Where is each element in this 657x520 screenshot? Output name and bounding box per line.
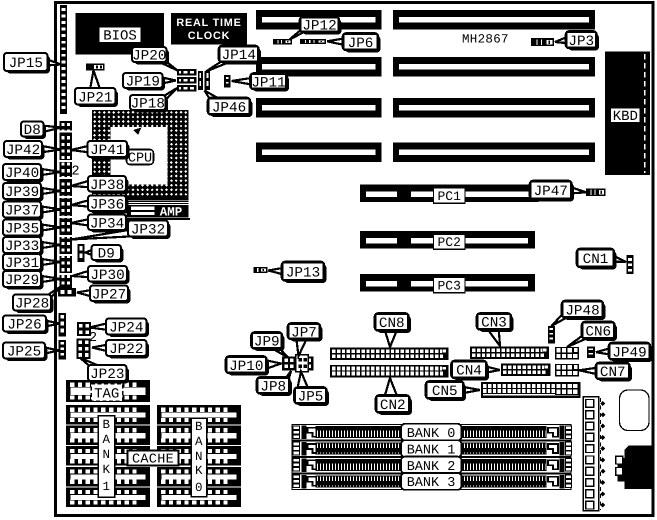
svg-text:JP21: JP21 bbox=[78, 90, 112, 106]
svg-text:JP48: JP48 bbox=[565, 303, 599, 319]
svg-text:JP12: JP12 bbox=[302, 19, 336, 35]
svg-text:CN8: CN8 bbox=[379, 316, 405, 332]
svg-text:CN5: CN5 bbox=[432, 384, 458, 400]
svg-text:JP18: JP18 bbox=[131, 97, 165, 113]
svg-text:JP39: JP39 bbox=[5, 185, 39, 201]
svg-text:JP3: JP3 bbox=[568, 34, 594, 50]
svg-text:KBD: KBD bbox=[613, 109, 638, 125]
svg-text:PC1: PC1 bbox=[437, 189, 461, 204]
svg-text:AMP: AMP bbox=[160, 206, 183, 220]
svg-text:A: A bbox=[102, 433, 110, 447]
svg-text:1: 1 bbox=[102, 480, 110, 494]
svg-text:JP6: JP6 bbox=[348, 36, 374, 52]
svg-text:K: K bbox=[195, 464, 203, 478]
svg-text:CPU: CPU bbox=[128, 152, 152, 167]
svg-text:2: 2 bbox=[72, 165, 80, 180]
svg-text:CN4: CN4 bbox=[456, 364, 482, 380]
svg-text:MH2867: MH2867 bbox=[462, 33, 509, 47]
svg-text:JP27: JP27 bbox=[92, 287, 126, 303]
svg-text:D9: D9 bbox=[98, 247, 115, 263]
svg-text:2: 2 bbox=[89, 331, 97, 346]
svg-text:JP36: JP36 bbox=[90, 197, 124, 213]
svg-text:JP23: JP23 bbox=[90, 367, 124, 383]
svg-text:PC2: PC2 bbox=[437, 235, 460, 250]
svg-text:JP38: JP38 bbox=[90, 178, 124, 194]
svg-text:JP34: JP34 bbox=[90, 216, 124, 232]
svg-text:BIOS: BIOS bbox=[103, 29, 137, 45]
svg-text:CN6: CN6 bbox=[585, 324, 611, 340]
svg-text:CLOCK: CLOCK bbox=[188, 30, 230, 42]
svg-text:JP19: JP19 bbox=[126, 75, 160, 91]
svg-text:BANK 3: BANK 3 bbox=[407, 476, 456, 491]
svg-text:D8: D8 bbox=[24, 123, 41, 139]
svg-text:JP33: JP33 bbox=[5, 239, 39, 255]
svg-text:JP41: JP41 bbox=[90, 143, 124, 159]
svg-text:TAG: TAG bbox=[94, 387, 119, 403]
svg-text:CN7: CN7 bbox=[600, 365, 626, 381]
svg-text:0: 0 bbox=[195, 481, 203, 495]
svg-text:JP24: JP24 bbox=[109, 321, 143, 337]
svg-text:JP15: JP15 bbox=[9, 56, 43, 72]
svg-text:JP11: JP11 bbox=[251, 75, 285, 91]
svg-text:JP25: JP25 bbox=[7, 345, 41, 361]
svg-text:CN2: CN2 bbox=[380, 398, 406, 414]
svg-text:JP47: JP47 bbox=[534, 184, 568, 200]
svg-text:JP46: JP46 bbox=[212, 100, 246, 116]
svg-text:CACHE: CACHE bbox=[132, 453, 174, 468]
svg-text:JP5: JP5 bbox=[298, 390, 324, 406]
svg-text:JP8: JP8 bbox=[260, 380, 286, 396]
svg-text:N: N bbox=[195, 450, 203, 464]
svg-text:B: B bbox=[102, 418, 110, 432]
svg-text:JP26: JP26 bbox=[7, 318, 41, 334]
svg-text:JP31: JP31 bbox=[5, 256, 39, 272]
svg-text:JP37: JP37 bbox=[5, 204, 39, 220]
svg-text:REAL TIME: REAL TIME bbox=[176, 17, 241, 29]
svg-text:JP49: JP49 bbox=[612, 345, 646, 361]
svg-text:JP32: JP32 bbox=[131, 223, 165, 239]
svg-text:JP9: JP9 bbox=[254, 335, 280, 351]
svg-text:JP22: JP22 bbox=[109, 342, 143, 358]
svg-text:K: K bbox=[102, 463, 110, 477]
svg-text:CN1: CN1 bbox=[583, 252, 609, 268]
svg-text:B: B bbox=[195, 420, 203, 434]
svg-text:JP40: JP40 bbox=[5, 166, 39, 182]
svg-text:JP42: JP42 bbox=[6, 143, 40, 159]
svg-text:JP20: JP20 bbox=[132, 49, 166, 65]
svg-text:JP10: JP10 bbox=[229, 359, 263, 375]
svg-text:JP35: JP35 bbox=[5, 222, 39, 238]
svg-text:JP13: JP13 bbox=[286, 265, 320, 281]
svg-text:CN3: CN3 bbox=[481, 316, 507, 332]
svg-text:JP28: JP28 bbox=[15, 297, 49, 313]
svg-text:JP29: JP29 bbox=[5, 273, 39, 289]
svg-text:JP7: JP7 bbox=[291, 325, 317, 341]
svg-text:PC3: PC3 bbox=[437, 278, 460, 293]
svg-text:JP14: JP14 bbox=[222, 48, 256, 64]
svg-text:A: A bbox=[195, 435, 203, 449]
svg-text:N: N bbox=[102, 448, 110, 462]
svg-text:JP30: JP30 bbox=[90, 268, 124, 284]
